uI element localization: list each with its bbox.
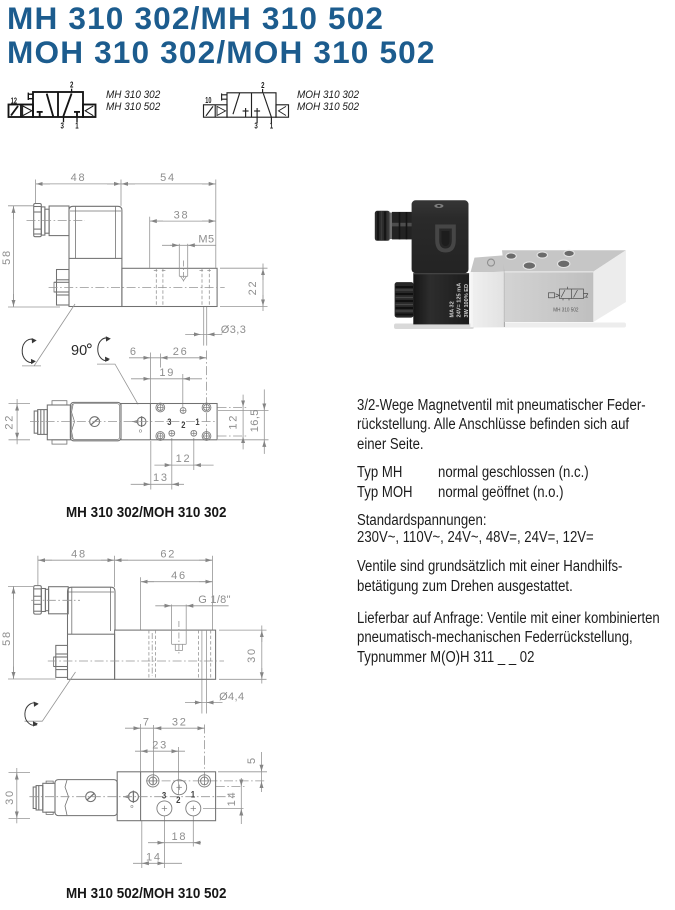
svg-text:48: 48 (71, 172, 87, 184)
svg-text:14: 14 (226, 791, 238, 807)
svg-text:3: 3 (254, 122, 258, 131)
svg-text:5: 5 (246, 756, 258, 764)
svg-text:30: 30 (4, 789, 16, 805)
svg-text:7: 7 (143, 717, 151, 729)
svg-text:3W 100% ED: 3W 100% ED (464, 284, 470, 318)
svg-text:46: 46 (171, 570, 187, 582)
svg-text:3: 3 (61, 122, 65, 131)
svg-text:62: 62 (160, 548, 176, 560)
svg-text:3: 3 (167, 417, 171, 427)
svg-text:Ø3,3: Ø3,3 (221, 324, 246, 336)
svg-text:12: 12 (228, 414, 240, 430)
svg-text:1: 1 (195, 417, 199, 427)
svg-text:3: 3 (162, 790, 166, 800)
svg-text:14: 14 (146, 851, 162, 863)
svg-text:19: 19 (159, 367, 175, 379)
svg-text:12: 12 (176, 453, 192, 465)
svg-text:10: 10 (205, 96, 212, 105)
svg-text:o: o (130, 804, 133, 810)
svg-text:24V= 125 mA: 24V= 125 mA (457, 283, 463, 318)
svg-text:90: 90 (71, 343, 87, 359)
svg-text:12: 12 (11, 96, 18, 105)
svg-text:54: 54 (160, 172, 176, 184)
svg-text:22: 22 (247, 280, 259, 296)
svg-text:13: 13 (153, 472, 169, 484)
svg-text:58: 58 (1, 249, 13, 265)
svg-text:58: 58 (1, 630, 13, 646)
svg-text:M5: M5 (198, 233, 214, 245)
svg-text:o: o (139, 429, 142, 435)
svg-text:2: 2 (70, 81, 74, 90)
svg-text:1: 1 (191, 790, 195, 800)
svg-text:32: 32 (172, 717, 188, 729)
svg-text:6: 6 (130, 346, 138, 358)
svg-text:G 1/8": G 1/8" (198, 594, 231, 606)
svg-text:30: 30 (246, 647, 258, 663)
svg-text:2: 2 (176, 795, 180, 805)
svg-text:23: 23 (152, 740, 168, 752)
svg-text:1: 1 (270, 122, 274, 131)
svg-text:48: 48 (71, 548, 87, 560)
svg-text:26: 26 (173, 346, 189, 358)
svg-text:2: 2 (181, 420, 185, 430)
svg-text:22: 22 (3, 414, 15, 430)
svg-text:MH 310 502: MH 310 502 (553, 307, 578, 313)
svg-text:38: 38 (174, 209, 190, 221)
svg-text:1: 1 (75, 122, 79, 131)
svg-text:MA 32: MA 32 (450, 301, 456, 317)
svg-text:2: 2 (261, 81, 265, 90)
svg-text:Ø4,4: Ø4,4 (219, 691, 244, 703)
svg-text:16,5: 16,5 (249, 409, 261, 432)
svg-text:18: 18 (171, 831, 187, 843)
